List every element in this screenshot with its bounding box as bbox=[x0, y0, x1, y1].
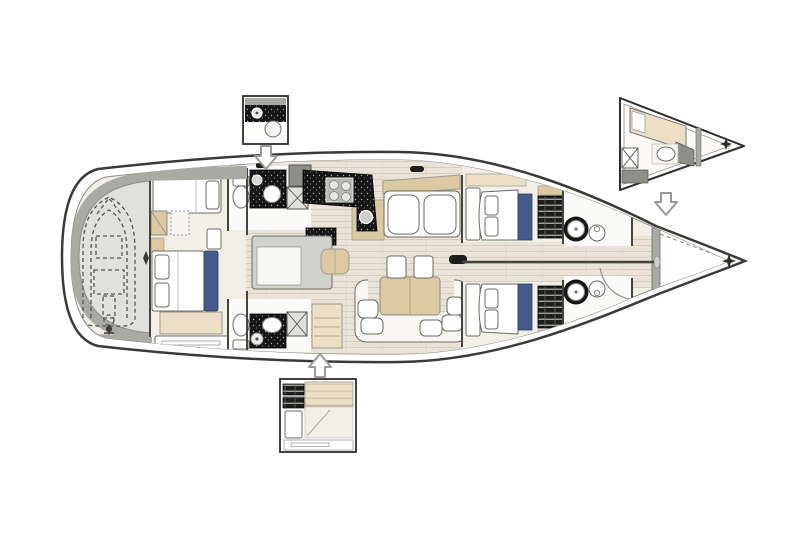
guest-bed-blue bbox=[518, 194, 532, 240]
vanity-cabinet bbox=[466, 188, 480, 240]
guest-bed-blue bbox=[518, 284, 532, 330]
vanity-cabinet bbox=[466, 284, 480, 336]
island-top-panel bbox=[257, 247, 301, 285]
shower-drain-dot bbox=[255, 337, 258, 340]
bed-pillow bbox=[485, 289, 498, 308]
crew-berth-pillow bbox=[632, 111, 645, 133]
bed-pillow bbox=[485, 217, 498, 236]
shelf-block bbox=[283, 384, 304, 395]
angled-shelf bbox=[594, 320, 616, 341]
bed-pillow bbox=[485, 310, 498, 329]
side-shelf bbox=[151, 238, 164, 252]
port-chaise bbox=[383, 175, 460, 237]
inset-aft-cabin-option bbox=[280, 354, 356, 452]
inset-bulkhead bbox=[696, 128, 701, 166]
aft-top-berth-pillow bbox=[206, 181, 219, 209]
bedside-seat bbox=[207, 229, 221, 249]
sofa-pillow bbox=[420, 320, 442, 336]
gray-low-block bbox=[622, 170, 648, 183]
owner-bed-blue-headboard bbox=[204, 251, 218, 311]
toilet-lid-dot bbox=[594, 226, 599, 231]
sideboard-band bbox=[284, 440, 353, 450]
main-hull-plan bbox=[62, 152, 745, 362]
shelf-unit bbox=[538, 286, 563, 328]
dining-chair bbox=[387, 256, 406, 278]
sofa-pillow bbox=[361, 318, 383, 334]
berth-beige-band bbox=[305, 382, 353, 406]
shelf-unit bbox=[538, 196, 563, 238]
round-basin bbox=[265, 121, 281, 137]
sofa-pillow bbox=[358, 300, 378, 318]
oval-basin bbox=[263, 318, 282, 333]
owner-bed-pillow bbox=[155, 283, 169, 307]
round-basin bbox=[264, 186, 281, 203]
burner bbox=[342, 193, 351, 202]
chaise-cushion bbox=[388, 195, 419, 234]
yacht-floorplan-page: { "meta": { "title": "Sailing yacht inte… bbox=[0, 0, 800, 533]
shower-tray bbox=[285, 411, 302, 438]
aft-bottom-bench bbox=[160, 312, 222, 334]
dotted-locker bbox=[171, 211, 189, 235]
dining-chair bbox=[414, 256, 433, 278]
oval-basin bbox=[657, 147, 675, 161]
shelf-block bbox=[283, 397, 304, 408]
toilet-lid-dot bbox=[594, 290, 599, 295]
bed-pillow bbox=[485, 196, 498, 215]
burner bbox=[330, 192, 339, 201]
companionway-steps bbox=[312, 304, 342, 348]
washer-porthole-dot bbox=[256, 112, 259, 115]
burner bbox=[342, 182, 351, 191]
inset-gray-band bbox=[245, 98, 286, 105]
basin-drain bbox=[574, 290, 577, 293]
floorplan-canvas bbox=[0, 0, 800, 533]
owner-bed-pillow bbox=[155, 255, 169, 279]
galley-sink bbox=[360, 211, 373, 224]
faucet bbox=[252, 175, 262, 185]
arrow-down-icon bbox=[655, 193, 677, 215]
basin-drain bbox=[574, 227, 577, 230]
bulkhead-hinge bbox=[654, 256, 660, 268]
aft-head-starboard bbox=[229, 299, 311, 352]
burner bbox=[330, 181, 339, 190]
sofa-pillow bbox=[442, 315, 462, 331]
inset-bow-option bbox=[620, 98, 744, 215]
chaise-cushion bbox=[424, 195, 456, 234]
deck-cleat bbox=[410, 166, 424, 172]
inset-counter-black bbox=[245, 105, 286, 122]
sofa-pillow bbox=[447, 297, 463, 315]
